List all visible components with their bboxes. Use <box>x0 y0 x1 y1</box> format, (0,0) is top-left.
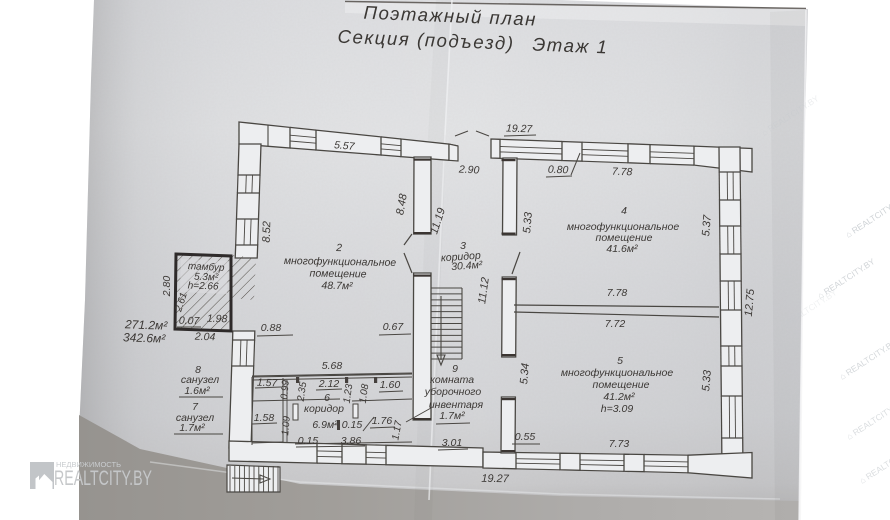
svg-text:0.15: 0.15 <box>298 435 319 447</box>
svg-text:h=3.09: h=3.09 <box>601 403 634 415</box>
svg-text:342.6м²: 342.6м² <box>123 330 167 346</box>
svg-text:0.67: 0.67 <box>383 321 405 333</box>
svg-text:12.75: 12.75 <box>743 288 757 317</box>
svg-text:7.73: 7.73 <box>609 438 630 450</box>
svg-text:многофункциональное: многофункциональное <box>561 367 673 379</box>
svg-text:1.57: 1.57 <box>257 377 279 390</box>
svg-text:0.15: 0.15 <box>342 419 363 431</box>
svg-text:помещение: помещение <box>310 268 367 281</box>
svg-text:1.76: 1.76 <box>372 415 393 427</box>
svg-text:2.80: 2.80 <box>161 276 173 298</box>
svg-text:7.78: 7.78 <box>607 287 628 299</box>
svg-text:7.78: 7.78 <box>612 166 633 179</box>
svg-text:1.98: 1.98 <box>207 313 228 326</box>
svg-text:3.86: 3.86 <box>341 435 362 447</box>
svg-text:2: 2 <box>335 242 342 254</box>
svg-text:3.01: 3.01 <box>442 437 462 449</box>
svg-text:REALTCITY.BY: REALTCITY.BY <box>54 467 152 490</box>
svg-text:5.37: 5.37 <box>700 214 714 237</box>
svg-text:2.12: 2.12 <box>318 378 340 390</box>
svg-text:41.2м²: 41.2м² <box>603 391 635 403</box>
svg-text:0.07: 0.07 <box>179 315 201 328</box>
svg-text:5.68: 5.68 <box>322 360 343 372</box>
svg-text:5.33: 5.33 <box>700 369 714 392</box>
svg-text:8.52: 8.52 <box>261 221 274 243</box>
svg-text:19.27: 19.27 <box>506 123 534 136</box>
svg-text:6.9м²: 6.9м² <box>312 419 338 431</box>
svg-text:41.6м²: 41.6м² <box>606 243 638 255</box>
svg-text:5.33: 5.33 <box>521 211 535 234</box>
svg-text:2.04: 2.04 <box>194 331 216 344</box>
svg-text:1.58: 1.58 <box>254 412 275 424</box>
svg-text:1.7м²: 1.7м² <box>439 410 465 422</box>
svg-text:Этаж 1: Этаж 1 <box>532 33 609 57</box>
svg-text:0.99: 0.99 <box>279 379 292 400</box>
svg-text:коридор: коридор <box>304 403 344 415</box>
svg-text:5.34: 5.34 <box>518 363 532 385</box>
svg-text:комната: комната <box>430 374 474 386</box>
svg-text:1.09: 1.09 <box>280 415 293 436</box>
svg-text:h=2.66: h=2.66 <box>187 280 219 292</box>
svg-text:5.57: 5.57 <box>334 139 357 153</box>
svg-text:0.80: 0.80 <box>548 164 569 177</box>
svg-text:0.55: 0.55 <box>515 431 536 443</box>
svg-text:1.7м²: 1.7м² <box>179 422 205 434</box>
svg-text:0.88: 0.88 <box>261 322 282 334</box>
svg-text:многофункциональное: многофункциональное <box>284 255 397 269</box>
svg-text:уборочного: уборочного <box>424 386 482 398</box>
svg-text:7.72: 7.72 <box>605 318 626 330</box>
svg-text:19.27: 19.27 <box>481 473 510 485</box>
svg-text:30.4м²: 30.4м² <box>451 259 483 273</box>
svg-text:помещение: помещение <box>593 379 650 391</box>
svg-text:48.7м²: 48.7м² <box>321 280 353 293</box>
svg-text:1.6м²: 1.6м² <box>184 385 210 397</box>
svg-text:5: 5 <box>617 355 623 367</box>
svg-text:4: 4 <box>621 205 627 217</box>
svg-text:2.90: 2.90 <box>458 163 480 176</box>
svg-text:1.60: 1.60 <box>380 379 401 391</box>
